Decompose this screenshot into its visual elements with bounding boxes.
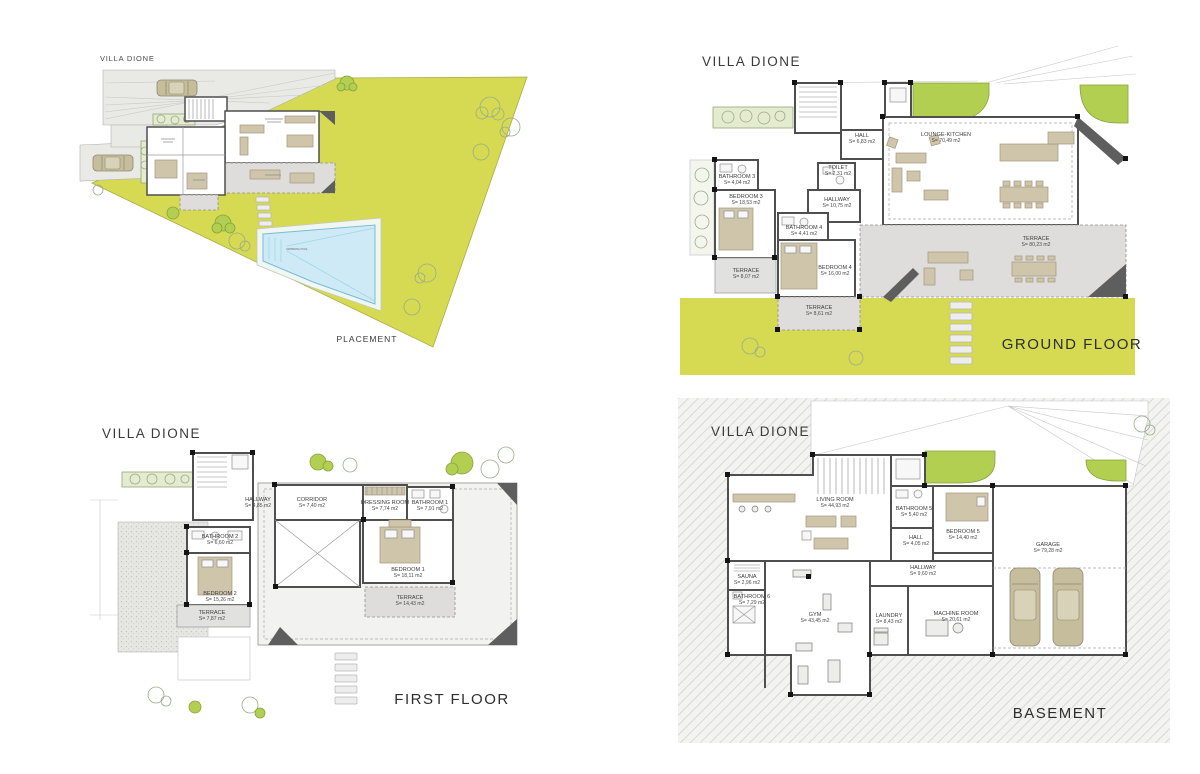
room-label-bathroom3: BATHROOM 3S= 4,04 m2 [719, 174, 756, 186]
lower-terrace [178, 637, 250, 680]
swimming-pool: SWIMMING POOL [257, 218, 381, 311]
planter-strip [122, 472, 194, 487]
car [93, 155, 133, 171]
room-label-hallway: HALLWAYS= 9,60 m2 [910, 565, 936, 577]
panel-title: VILLA DIONE [711, 424, 810, 439]
room-label-bedroom1: BEDROOM 1S= 18,11 m2 [391, 567, 425, 579]
room-label-toilet: TOILETS= 2,31 m2 [825, 165, 851, 177]
room-label-terrace2: TERRACES= 8,61 m2 [806, 305, 833, 317]
room-label-terrace-main: TERRACES= 80,23 m2 [1021, 236, 1050, 248]
room-label-bedroom5: BEDROOM 5S= 14,40 m2 [946, 529, 980, 541]
room-label-hallway: HALLWAYS= 10,75 m2 [822, 197, 851, 209]
pool-label: SWIMMING POOL [286, 247, 308, 251]
car [157, 80, 197, 96]
site-lines [90, 500, 118, 620]
room-label-bedroom4: BEDROOM 4S= 16,00 m2 [818, 265, 852, 277]
basement-plan: LIVING ROOMS= 44,93 m2 BATHROOM 5S= 5,40… [678, 398, 1170, 748]
panel-title: VILLA DIONE [100, 54, 155, 63]
panel-caption: PLACEMENT [337, 334, 398, 344]
room-label-laundry: LAUNDRYS= 8,43 m2 [876, 613, 903, 625]
room-label-living: LIVING ROOMS= 44,93 m2 [816, 497, 854, 509]
room-label-sauna: SAUNAS= 2,96 m2 [734, 574, 760, 586]
first-floor-plan: HALLWAYS= 4,85 m2 CORRIDORS= 7,40 m2 DRE… [60, 405, 535, 740]
room-label-terrace2: TERRACES= 14,43 m2 [395, 595, 424, 607]
room-label-terrace1: TERRACES= 8,07 m2 [733, 268, 760, 280]
site-lines [793, 46, 1136, 84]
room-label-bathroom2: BATHROOM 2S= 6,60 m2 [202, 534, 239, 546]
garden-bed [913, 83, 989, 121]
panel-caption: FIRST FLOOR [394, 691, 509, 708]
room-label-bathroom4: BATHROOM 4S= 4,41 m2 [786, 225, 823, 237]
room-label-bathroom5: BATHROOM 5S= 5,40 m2 [896, 506, 933, 518]
room-label-garage: GARAGES= 79,28 m2 [1033, 542, 1062, 554]
planter-strip [713, 107, 793, 128]
room-label-corridor: CORRIDORS= 7,40 m2 [297, 497, 327, 509]
panel-caption: GROUND FLOOR [1002, 336, 1143, 353]
panel-caption: BASEMENT [1013, 705, 1108, 722]
room-label-bedroom2: BEDROOM 2S= 15,26 m2 [203, 591, 237, 603]
room-label-bathroom6: BATHROOM 6S= 7,29 m2 [734, 594, 771, 606]
ground-floor-plan: HALLS= 6,83 m2 LOUNGE-KITCHENS= 70,49 m2… [678, 40, 1168, 380]
placement-plan: SWIMMING POOL [35, 15, 535, 370]
stepping-stones [335, 653, 357, 704]
room-label-hallway: HALLWAYS= 4,85 m2 [245, 497, 271, 509]
side-planter [690, 160, 714, 255]
room-label-terrace1: TERRACES= 7,87 m2 [199, 610, 226, 622]
room-label-bathroom1: BATHROOM 1S= 7,91 m2 [412, 500, 449, 512]
floor-plan-sheet: SWIMMING POOL [0, 0, 1200, 774]
panel-title: VILLA DIONE [702, 54, 801, 69]
room-label-bedroom3: BEDROOM 3S= 18,53 m2 [729, 194, 763, 206]
panel-title: VILLA DIONE [102, 426, 201, 441]
garden-bed [1080, 85, 1128, 123]
